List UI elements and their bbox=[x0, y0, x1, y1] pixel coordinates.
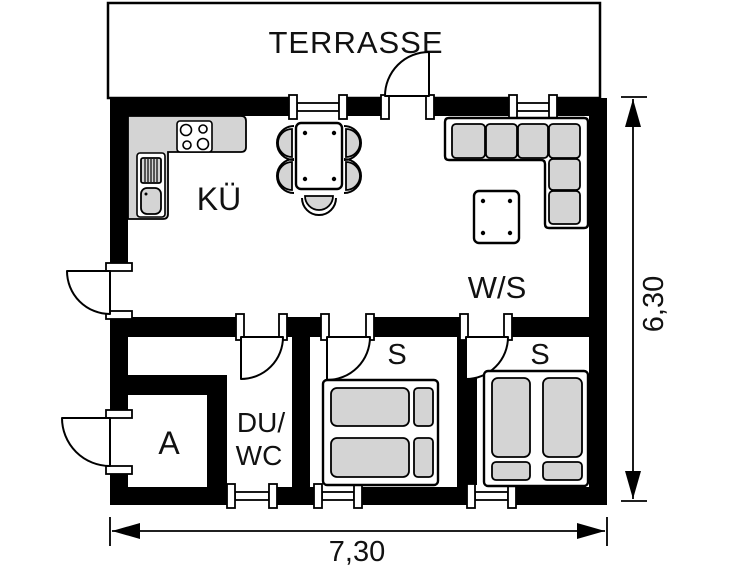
window-glass bbox=[297, 103, 339, 111]
window-glass bbox=[517, 103, 549, 111]
table-dot bbox=[481, 231, 485, 235]
floorplan: TERRASSE bbox=[0, 0, 755, 566]
door-opening bbox=[464, 315, 506, 339]
dimension-width: 7,30 bbox=[110, 517, 607, 566]
table-dot bbox=[332, 177, 336, 181]
table-dot bbox=[481, 199, 485, 203]
door-swing-icon bbox=[327, 337, 370, 380]
bed-pillow bbox=[414, 388, 433, 426]
window-jamb bbox=[354, 484, 362, 508]
window-jamb bbox=[339, 95, 347, 119]
bath-label-line2: WC bbox=[236, 440, 283, 471]
door-swing-icon bbox=[67, 271, 110, 314]
bed-mattress bbox=[331, 438, 409, 477]
living-label: W/S bbox=[468, 270, 527, 305]
arrow-down-icon bbox=[625, 471, 641, 499]
table-dot bbox=[303, 131, 307, 135]
window-jamb bbox=[467, 484, 475, 508]
door-opening bbox=[108, 418, 130, 466]
bedroom-right-label: S bbox=[530, 339, 549, 371]
door-opening bbox=[385, 96, 428, 118]
window-jamb bbox=[508, 484, 516, 508]
bedroom-furniture bbox=[323, 371, 588, 486]
bed-pillow bbox=[543, 462, 582, 480]
arrow-left-icon bbox=[112, 523, 140, 539]
door-jamb bbox=[106, 410, 132, 418]
living-furniture bbox=[445, 118, 588, 243]
floorplan-drawing: TERRASSE bbox=[0, 0, 755, 566]
window-jamb bbox=[289, 95, 297, 119]
door-jamb bbox=[381, 95, 389, 119]
bath-label-line1: DU/ bbox=[237, 407, 285, 438]
door-swing-icon bbox=[241, 337, 283, 379]
bed-mattress bbox=[492, 378, 530, 457]
window-jamb bbox=[549, 95, 557, 119]
door-jamb bbox=[426, 95, 434, 119]
window-glass bbox=[235, 492, 269, 500]
bed-mattress bbox=[543, 378, 582, 457]
table-dot bbox=[508, 199, 512, 203]
wall-bath-bedroom bbox=[292, 337, 310, 487]
window-glass bbox=[322, 492, 354, 500]
storage-label: A bbox=[158, 425, 180, 461]
window-jamb bbox=[269, 484, 277, 508]
wall-storage-right bbox=[207, 375, 227, 487]
table-dot bbox=[508, 231, 512, 235]
table-dot bbox=[332, 131, 336, 135]
chair-icon bbox=[305, 196, 333, 210]
sofa-cushion bbox=[549, 159, 580, 190]
door-opening bbox=[325, 315, 368, 339]
arrow-right-icon bbox=[577, 523, 605, 539]
table-dot bbox=[303, 177, 307, 181]
door-swing-icon bbox=[62, 418, 110, 466]
width-value: 7,30 bbox=[329, 536, 385, 566]
dimension-height: 6,30 bbox=[621, 97, 670, 501]
bed-pillow bbox=[414, 438, 433, 477]
sofa-cushion bbox=[518, 124, 548, 158]
sofa-cushion bbox=[549, 191, 580, 224]
sink-drain bbox=[145, 193, 148, 196]
kitchen-label: KÜ bbox=[197, 181, 241, 217]
sofa-cushion bbox=[549, 124, 580, 158]
window-jamb bbox=[227, 484, 235, 508]
door-opening bbox=[239, 315, 281, 339]
arrow-up-icon bbox=[625, 99, 641, 127]
door-jamb bbox=[106, 466, 132, 474]
sofa-cushion bbox=[452, 124, 485, 158]
window-jamb bbox=[509, 95, 517, 119]
window-glass bbox=[475, 492, 508, 500]
height-value: 6,30 bbox=[638, 276, 670, 332]
wall-right bbox=[589, 98, 607, 505]
sofa-cushion bbox=[486, 124, 517, 158]
bed-mattress bbox=[331, 388, 409, 426]
bedroom-mid-label: S bbox=[387, 339, 406, 371]
dining-set bbox=[277, 123, 361, 215]
bed-pillow bbox=[492, 462, 530, 480]
door-jamb bbox=[106, 263, 132, 271]
coffee-table bbox=[474, 191, 519, 243]
door-opening bbox=[108, 270, 130, 312]
window-jamb bbox=[314, 484, 322, 508]
sink-basin-icon bbox=[141, 188, 161, 214]
